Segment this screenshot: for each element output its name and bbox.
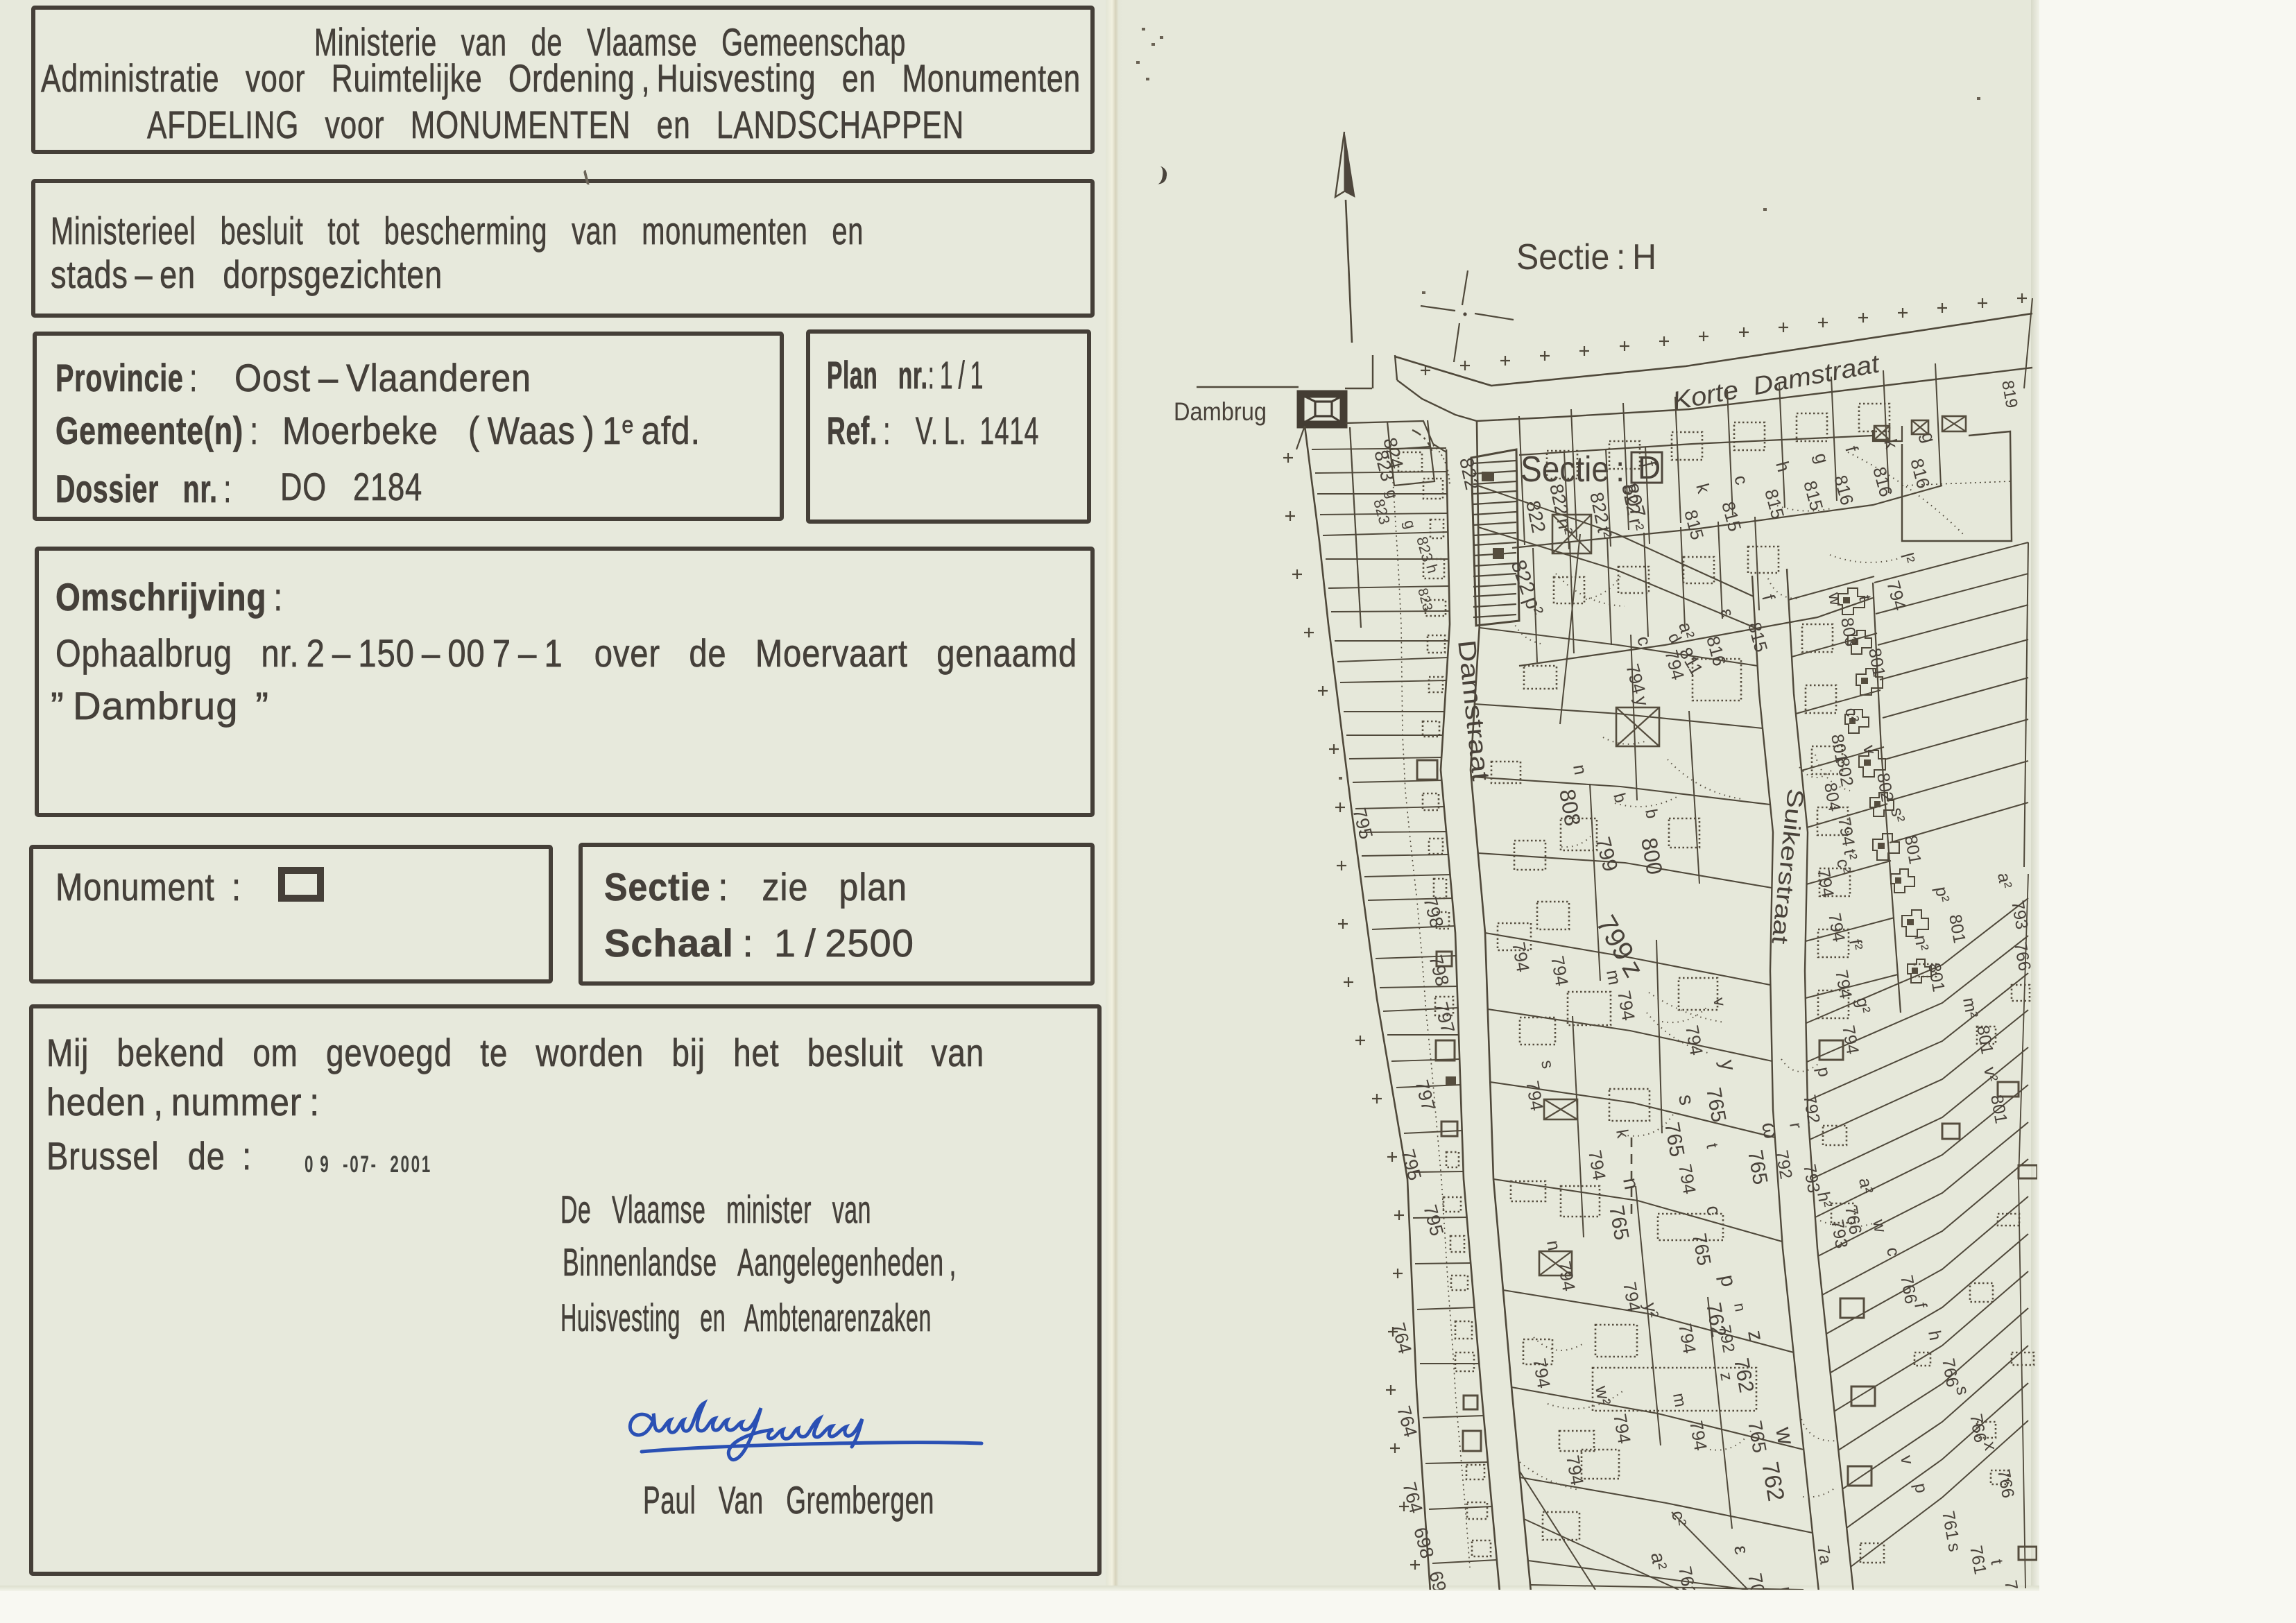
svg-text:ε: ε — [1716, 606, 1738, 619]
svg-text:c²: c² — [1841, 706, 1862, 723]
svg-text:792: 792 — [1772, 1149, 1796, 1180]
svg-text:816: 816 — [1702, 634, 1730, 669]
svg-text:k: k — [1692, 481, 1715, 496]
svg-text:762: 762 — [1756, 1460, 1789, 1503]
svg-text:a²: a² — [1674, 620, 1699, 641]
svg-text:794: 794 — [1674, 1162, 1700, 1196]
svg-text:761: 761 — [2001, 1579, 2025, 1590]
svg-text:766: 766 — [2010, 941, 2034, 972]
svg-text:a²: a² — [1855, 1176, 1876, 1195]
svg-text:762 g²: 762 g² — [1674, 1565, 1704, 1590]
svg-text:c: c — [1633, 634, 1655, 648]
svg-text:y: y — [1715, 1058, 1740, 1072]
svg-text:ε: ε — [1730, 1544, 1753, 1556]
svg-text:765: 765 — [1604, 1203, 1633, 1242]
svg-text:798: 798 — [1425, 953, 1453, 988]
svg-text:801: 801 — [1865, 646, 1889, 678]
svg-text:799: 799 — [1591, 834, 1622, 874]
svg-text:f: f — [1758, 592, 1779, 603]
svg-text:p: p — [1715, 1273, 1740, 1288]
svg-text:762: 762 — [1729, 1356, 1758, 1394]
svg-text:794: 794 — [1522, 1079, 1548, 1113]
svg-text:765: 765 — [1744, 1419, 1771, 1454]
svg-text:794: 794 — [1609, 1412, 1635, 1445]
svg-text:815: 815 — [1717, 499, 1745, 534]
svg-text:762: 762 — [1702, 1300, 1730, 1339]
svg-text:794: 794 — [1554, 1260, 1579, 1293]
svg-text:z: z — [1743, 1328, 1767, 1343]
svg-text:c: c — [1730, 473, 1752, 487]
svg-text:794: 794 — [1681, 1024, 1707, 1057]
svg-text:794 y: 794 y — [1622, 662, 1653, 708]
svg-text:b: b — [1641, 807, 1661, 820]
svg-text:764: 764 — [1387, 1321, 1416, 1356]
svg-text:Suikerstraat: Suikerstraat — [1767, 787, 1809, 945]
svg-text:794: 794 — [1838, 1024, 1862, 1056]
svg-text:822 p²: 822 p² — [1506, 557, 1547, 619]
svg-text:r: r — [1785, 1121, 1806, 1130]
svg-text:793: 793 — [2007, 899, 2032, 931]
svg-text:765: 765 — [1743, 1148, 1772, 1186]
svg-text:m: m — [1602, 968, 1625, 987]
svg-text:n: n — [1543, 1239, 1565, 1252]
svg-text:n: n — [1731, 1302, 1749, 1313]
svg-text:700: 700 — [1744, 1572, 1771, 1590]
svg-text:816: 816 — [1830, 473, 1858, 508]
svg-text:801: 801 — [1924, 961, 1948, 993]
svg-text:795: 795 — [1419, 1203, 1448, 1238]
svg-text:822 n²: 822 n² — [1545, 482, 1577, 537]
svg-text:n: n — [1569, 763, 1591, 776]
svg-text:m²: m² — [1959, 996, 1982, 1020]
svg-text:766: 766 — [1966, 1412, 1990, 1444]
svg-text:c: c — [1883, 1246, 1903, 1257]
svg-text:794: 794 — [1584, 1149, 1610, 1182]
svg-text:801: 801 — [1987, 1093, 2011, 1125]
svg-text:808: 808 — [1554, 787, 1586, 828]
svg-text:a²: a² — [1994, 871, 2015, 890]
svg-text:794: 794 — [1813, 867, 1837, 899]
svg-text:g²: g² — [1852, 996, 1874, 1015]
svg-text:794: 794 — [1508, 941, 1534, 974]
svg-text:798: 798 — [1419, 895, 1448, 930]
svg-text:n²: n² — [1910, 934, 1932, 952]
svg-text:l²: l² — [1896, 551, 1919, 566]
svg-text:g: g — [1400, 518, 1419, 531]
svg-text:s: s — [1674, 1092, 1698, 1107]
svg-text:761: 761 — [1966, 1544, 1990, 1576]
svg-text:794: 794 — [1547, 954, 1573, 988]
svg-text:764: 764 — [1393, 1404, 1421, 1439]
svg-text:Sectie : H: Sectie : H — [1516, 237, 1656, 277]
svg-text:s: s — [1537, 1058, 1557, 1070]
svg-text:815: 815 — [1744, 620, 1772, 655]
svg-text:765: 765 — [1660, 1120, 1688, 1158]
svg-text:v: v — [1709, 996, 1729, 1008]
svg-text:p: p — [1813, 1065, 1834, 1079]
svg-text:795: 795 — [1397, 1147, 1425, 1183]
svg-text:t: t — [1987, 1558, 2007, 1566]
svg-text:804: 804 — [1820, 781, 1844, 813]
svg-text:792: 792 — [1799, 1093, 1824, 1125]
svg-text:7a: 7a — [1813, 1544, 1835, 1566]
svg-text:b: b — [1609, 791, 1630, 805]
svg-text:765: 765 — [1702, 1085, 1730, 1124]
svg-text:w: w — [1770, 1425, 1799, 1447]
svg-text:823: 823 — [1414, 587, 1435, 613]
svg-text:698: 698 — [1410, 1525, 1438, 1561]
svg-text:795: 795 — [1348, 806, 1377, 841]
svg-text:Dambrug: Dambrug — [1174, 397, 1267, 426]
svg-text:802: 802 — [1873, 771, 1897, 803]
svg-text:822: 822 — [1522, 499, 1550, 535]
svg-text:819: 819 — [1998, 379, 2021, 409]
svg-text:f: f — [1841, 444, 1862, 454]
svg-text:s²: s² — [1887, 806, 1908, 823]
svg-text:h: h — [1423, 563, 1441, 575]
svg-text:765: 765 — [1688, 1232, 1715, 1267]
svg-text:797: 797 — [1430, 1000, 1459, 1036]
svg-text:766: 766 — [1896, 1273, 1921, 1305]
svg-text:p: p — [1910, 1482, 1931, 1495]
svg-text:p²: p² — [1931, 885, 1953, 904]
svg-text:794: 794 — [1613, 989, 1639, 1022]
svg-text:807: 807 — [1618, 481, 1650, 520]
svg-text:794 t²: 794 t² — [1834, 816, 1860, 861]
svg-text:801: 801 — [1901, 834, 1925, 866]
svg-text:801: 801 — [1945, 913, 1969, 945]
svg-text:ω: ω — [1757, 1120, 1783, 1140]
svg-text:794: 794 — [1831, 968, 1856, 1000]
svg-text:a²: a² — [1647, 1551, 1671, 1572]
svg-text:800: 800 — [1636, 836, 1668, 877]
svg-text:v²: v² — [1980, 1065, 2001, 1083]
svg-text:v: v — [1859, 744, 1880, 756]
svg-text:k: k — [1612, 1128, 1632, 1140]
svg-text:794: 794 — [1562, 1454, 1588, 1487]
svg-text:761 s: 761 s — [1938, 1509, 1964, 1553]
svg-text:Damstraat: Damstraat — [1453, 639, 1496, 782]
svg-text:w²: w² — [1591, 1384, 1616, 1407]
svg-text:766: 766 — [1994, 1468, 2018, 1500]
svg-text:801: 801 — [1827, 732, 1851, 764]
svg-text:c: c — [1702, 1204, 1725, 1217]
svg-text:815: 815 — [1680, 508, 1708, 542]
svg-text:816: 816 — [1869, 465, 1896, 499]
svg-text:Korte Damstraat: Korte Damstraat — [1670, 349, 1883, 415]
svg-text:w: w — [1869, 1217, 1890, 1235]
svg-text:v: v — [1896, 1454, 1917, 1466]
svg-text:m: m — [1669, 1391, 1690, 1408]
svg-text:t: t — [1702, 1142, 1722, 1150]
svg-text:g: g — [1810, 451, 1833, 466]
svg-text:794: 794 — [1529, 1357, 1554, 1390]
svg-text:c²: c² — [1668, 1509, 1690, 1528]
svg-text:794: 794 — [1824, 911, 1849, 943]
svg-text:816: 816 — [1906, 456, 1934, 491]
svg-text:815: 815 — [1799, 479, 1827, 513]
svg-text:794: 794 — [1674, 1322, 1700, 1355]
svg-text:793: 793 — [1799, 1162, 1824, 1194]
svg-text:823: 823 — [1370, 497, 1394, 526]
svg-text:794: 794 — [1686, 1419, 1711, 1452]
svg-text:797: 797 — [1411, 1078, 1439, 1113]
svg-text:h: h — [1924, 1329, 1945, 1342]
